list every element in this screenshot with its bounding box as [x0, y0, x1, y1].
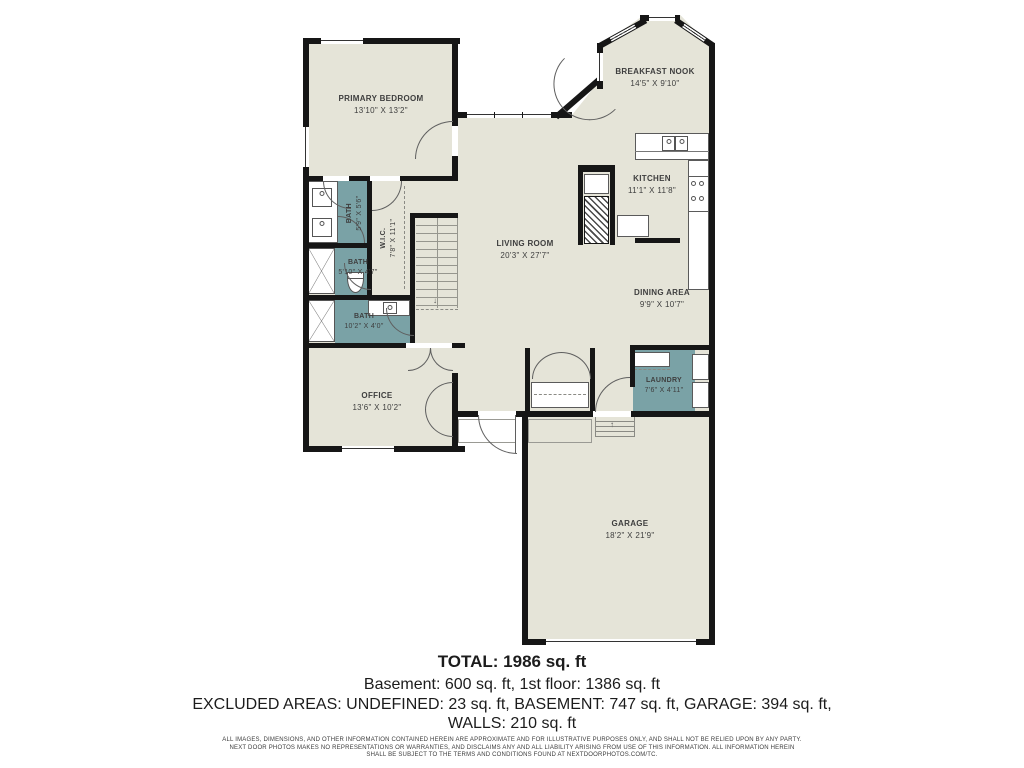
room-dims: 10'2" X 4'0" [344, 322, 383, 332]
interior-wall [630, 345, 715, 350]
room-dims: 5'10" X 4'7" [338, 268, 377, 278]
room-label-kitchen: KITCHEN 11'1" X 11'8" [628, 173, 676, 196]
window [466, 112, 552, 118]
kitchen-sink [675, 136, 688, 151]
room-name: OFFICE [352, 390, 401, 402]
room-name: BREAKFAST NOOK [615, 66, 694, 78]
disclaimer: ALL IMAGES, DIMENSIONS, AND OTHER INFORM… [0, 737, 1024, 760]
room-dims: 20'3" X 27'7" [496, 250, 553, 262]
excluded-areas-text: EXCLUDED AREAS: UNDEFINED: 23 sq. ft, BA… [0, 695, 1024, 715]
room-dims: 9'9" X 10'7" [634, 299, 690, 311]
closet-shelf-line [534, 394, 586, 395]
floor-areas-text: Basement: 600 sq. ft, 1st floor: 1386 sq… [0, 675, 1024, 695]
room-name: DINING AREA [634, 287, 690, 299]
dryer [692, 382, 709, 408]
fireplace-niche [584, 174, 609, 194]
range-burner [691, 196, 696, 201]
stairs-arrow: ↓ [433, 297, 437, 305]
room-dims: 5'9" X 5'6" [355, 196, 365, 231]
garage-door [545, 639, 697, 645]
walls-area-text: WALLS: 210 sq. ft [0, 714, 1024, 734]
room-label-wic: W.I.C. 7'8" X 11'1" [379, 219, 399, 258]
room-name: BATH [338, 258, 377, 268]
room-name: BATH [344, 312, 383, 322]
front-door-arc [478, 415, 517, 454]
range-burner [699, 196, 704, 201]
shower [308, 248, 335, 294]
room-label-garage: GARAGE 18'2" X 21'9" [605, 518, 654, 541]
room-label-bath-primary: BATH 5'9" X 5'6" [345, 196, 365, 231]
window [320, 38, 364, 44]
room-dims: 13'10" X 13'2" [339, 105, 424, 117]
room-name: LAUNDRY [645, 376, 684, 386]
steps-arrow: ↑ [610, 421, 614, 429]
disclaimer-line: NEXT DOOR PHOTOS MAKES NO REPRESENTATION… [0, 745, 1024, 753]
room-name: GARAGE [605, 518, 654, 530]
laundry-shelf [634, 352, 670, 367]
closet-wall [590, 348, 595, 411]
window [303, 126, 309, 168]
room-label-breakfast-nook: BREAKFAST NOOK 14'5" X 9'10" [615, 66, 694, 89]
stairs [416, 218, 458, 308]
room-name: LIVING ROOM [496, 238, 553, 250]
room-dims: 14'5" X 9'10" [615, 78, 694, 90]
room-name: PRIMARY BEDROOM [339, 93, 424, 105]
room-label-laundry: LAUNDRY 7'6" X 4'11" [645, 376, 684, 396]
range-burner [691, 181, 696, 186]
floor-plan-page: ↓ ↑ [0, 0, 1024, 768]
room-label-bath-hall: BATH 10'2" X 4'0" [344, 312, 383, 332]
fireplace-wall [610, 165, 615, 245]
room-dims: 18'2" X 21'9" [605, 530, 654, 542]
room-label-dining-area: DINING AREA 9'9" X 10'7" [634, 287, 690, 310]
stairs-overhead-line [416, 309, 458, 310]
garage-landing [528, 419, 592, 443]
total-area-text: TOTAL: 1986 sq. ft [0, 652, 1024, 672]
kitchen-peninsula [617, 215, 649, 237]
range-burner [699, 181, 704, 186]
shower [308, 300, 335, 342]
kitchen-sink [662, 136, 675, 151]
room-label-office: OFFICE 13'6" X 10'2" [352, 390, 401, 413]
sink [312, 218, 332, 237]
room-label-primary-bedroom: PRIMARY BEDROOM 13'10" X 13'2" [339, 93, 424, 116]
exterior-wall [709, 43, 715, 645]
room-dims: 11'1" X 11'8" [628, 185, 676, 197]
garage-steps [595, 417, 635, 437]
front-door-leaf [515, 415, 516, 453]
interior-wall [635, 238, 680, 243]
window [341, 446, 395, 452]
closet-rod [404, 186, 405, 289]
interior-wall [303, 295, 415, 300]
window [597, 52, 603, 82]
closet-wall [525, 348, 530, 411]
laundry-shelf-line [634, 369, 670, 370]
closet-shelf [531, 382, 589, 408]
exterior-wall [522, 417, 528, 641]
window [648, 15, 676, 21]
interior-wall [630, 345, 635, 387]
disclaimer-line: ALL IMAGES, DIMENSIONS, AND OTHER INFORM… [0, 737, 1024, 745]
window-mullion [522, 112, 523, 118]
window-mullion [494, 112, 495, 118]
room-dims: 7'6" X 4'11" [645, 386, 684, 396]
disclaimer-line: SHALL BE SUBJECT TO THE TERMS AND CONDIT… [0, 752, 1024, 760]
room-label-living-room: LIVING ROOM 20'3" X 27'7" [496, 238, 553, 261]
fireplace-wall [578, 165, 583, 245]
interior-wall [410, 213, 458, 218]
kitchen-counter-edge [635, 151, 709, 152]
room-dims: 7'8" X 11'1" [389, 219, 399, 258]
fireplace [584, 196, 609, 244]
room-label-bath-middle: BATH 5'10" X 4'7" [338, 258, 377, 278]
room-name: W.I.C. [379, 219, 389, 258]
room-name: KITCHEN [628, 173, 676, 185]
interior-wall [303, 243, 372, 248]
room-name: BATH [345, 196, 355, 231]
room-dims: 13'6" X 10'2" [352, 402, 401, 414]
area-summary: TOTAL: 1986 sq. ft Basement: 600 sq. ft,… [0, 652, 1024, 734]
washer [692, 354, 709, 380]
